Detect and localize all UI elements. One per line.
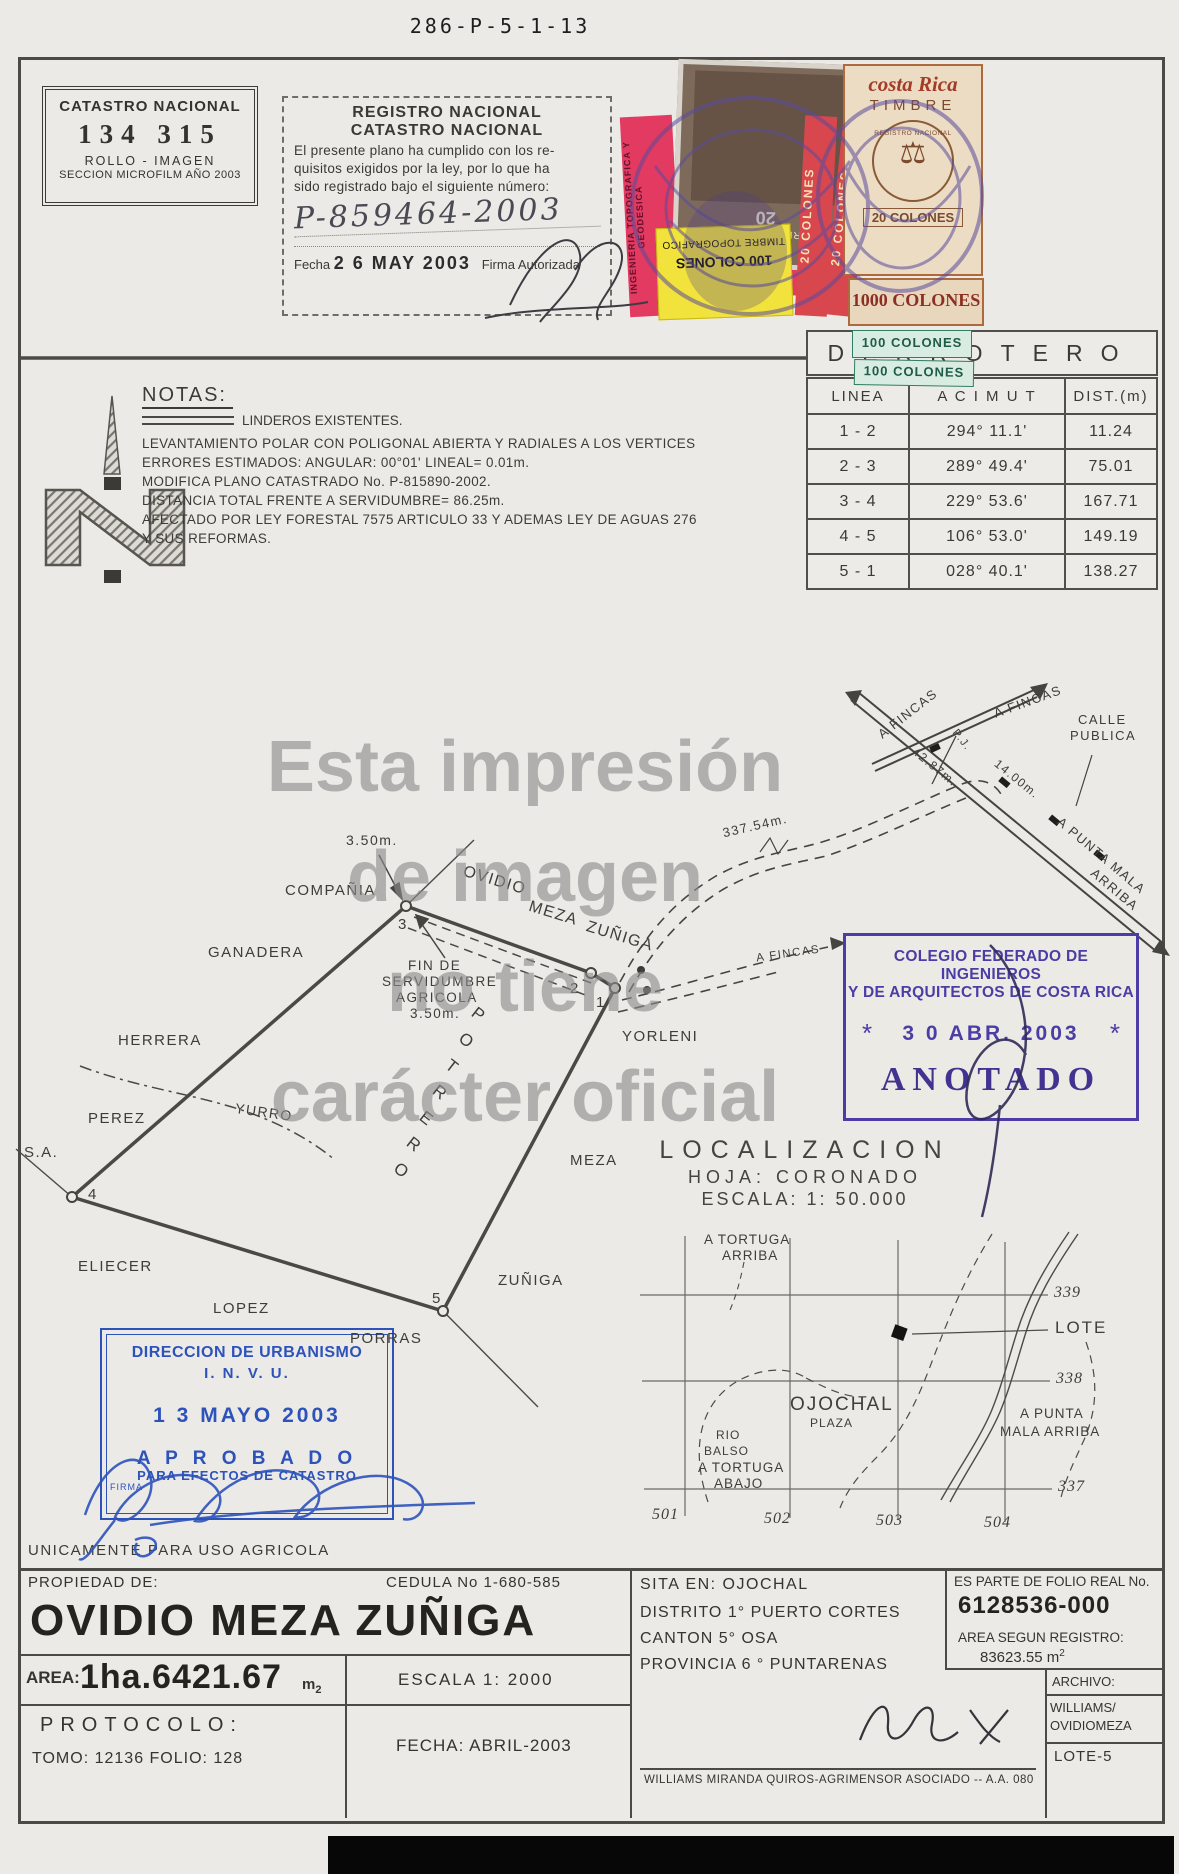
neighbor-label: LOPEZ bbox=[213, 1300, 270, 1317]
neighbor-label: S.A. bbox=[24, 1144, 58, 1161]
distrito: DISTRITO 1° PUERTO CORTES bbox=[640, 1604, 900, 1622]
owner-name: OVIDIO MEZA ZUÑIGA bbox=[30, 1596, 536, 1646]
invu-aprobado-stamp: DIRECCION DE URBANISMO I. N. V. U. 1 3 M… bbox=[100, 1328, 394, 1520]
uso-agricola-note: UNICAMENTE PARA USO AGRICOLA bbox=[28, 1542, 330, 1559]
registro-body1: El presente plano ha cumplido con los re… bbox=[294, 143, 600, 158]
cell-acimut: 294° 11.1' bbox=[909, 414, 1065, 449]
invu-line2: I. N. V. U. bbox=[102, 1365, 392, 1382]
colegio-federado-stamp: COLEGIO FEDERADO DE INGENIEROS Y DE ARQU… bbox=[843, 933, 1139, 1121]
cell-linea: 2 - 3 bbox=[807, 449, 909, 484]
lote-label: LOTE bbox=[1055, 1318, 1107, 1338]
protocolo-label: PROTOCOLO: bbox=[40, 1714, 243, 1737]
cell-acimut: 289° 49.4' bbox=[909, 449, 1065, 484]
tomo-folio: TOMO: 12136 FOLIO: 128 bbox=[32, 1750, 243, 1768]
fecha-stamp: 2 6 MAY 2003 bbox=[334, 253, 471, 273]
cell-linea: 5 - 1 bbox=[807, 554, 909, 589]
colegio-line2: Y DE ARQUITECTOS DE COSTA RICA bbox=[846, 984, 1136, 1002]
registro-nacional-stamp: REGISTRO NACIONAL CATASTRO NACIONAL El p… bbox=[282, 96, 612, 316]
linderos-symbol bbox=[142, 416, 234, 425]
archivo-lote: LOTE-5 bbox=[1054, 1748, 1113, 1765]
registro-fecha-row: Fecha 2 6 MAY 2003 Firma Autorizada bbox=[294, 246, 600, 274]
registro-body2: quisitos exigidos por la ley, por lo que… bbox=[294, 161, 600, 176]
cedula-value: CEDULA No 1-680-585 bbox=[386, 1574, 561, 1591]
cell-linea: 1 - 2 bbox=[807, 414, 909, 449]
agrimensor-name: WILLIAMS MIRANDA QUIROS-AGRIMENSOR ASOCI… bbox=[644, 1774, 1034, 1786]
servidumbre-note: SERVIDUMBRE bbox=[382, 974, 497, 989]
folio-real-value: 6128536-000 bbox=[958, 1592, 1110, 1620]
colegio-line1: COLEGIO FEDERADO DE INGENIEROS bbox=[846, 948, 1136, 984]
archivo-label: ARCHIVO: bbox=[1052, 1674, 1115, 1689]
scanned-cadastral-plan: 286-P-5-1-13 bbox=[0, 0, 1179, 1874]
table-row: 3 - 4229° 53.6'167.71 bbox=[807, 484, 1157, 519]
calle-publica-label: CALLE bbox=[1078, 712, 1127, 727]
invu-line1: DIRECCION DE URBANISMO bbox=[102, 1344, 392, 1362]
invu-aprobado: A P R O B A D O bbox=[102, 1448, 392, 1470]
servidumbre-note: AGRICOLA bbox=[396, 990, 478, 1005]
stamp-number: 134 315 bbox=[46, 119, 254, 150]
map-destination-label: MALA ARRIBA bbox=[1000, 1424, 1100, 1439]
grid-label: 338 bbox=[1056, 1370, 1083, 1388]
cell-acimut: 229° 53.6' bbox=[909, 484, 1065, 519]
localizacion-escala: ESCALA: 1: 50.000 bbox=[545, 1189, 1065, 1210]
linderos-text: LINDEROS EXISTENTES. bbox=[242, 413, 403, 428]
river-label: RIO bbox=[716, 1428, 740, 1442]
star-icon: * bbox=[1110, 1018, 1120, 1049]
provincia: PROVINCIA 6 ° PUNTARENAS bbox=[640, 1656, 888, 1674]
table-row: 4 - 5106° 53.0'149.19 bbox=[807, 519, 1157, 554]
servidumbre-note: FIN DE bbox=[408, 958, 461, 973]
stamp-seccion: SECCION MICROFILM AÑO 2003 bbox=[46, 169, 254, 181]
servidumbre-width-label: 3.50m. bbox=[346, 832, 398, 848]
river-label: BALSO bbox=[704, 1444, 749, 1458]
document-number: 286-P-5-1-13 bbox=[0, 14, 1000, 38]
invu-date: 1 3 MAYO 2003 bbox=[102, 1404, 392, 1428]
map-destination-label: A PUNTA bbox=[1020, 1406, 1084, 1421]
neighbor-label: YORLENI bbox=[622, 1028, 698, 1045]
stamp-title: CATASTRO NACIONAL bbox=[46, 98, 254, 115]
nota-line: DISTANCIA TOTAL FRENTE A SERVIDUMBRE= 86… bbox=[142, 491, 812, 510]
cell-dist: 138.27 bbox=[1065, 554, 1157, 589]
neighbor-label: PORRAS bbox=[350, 1330, 422, 1347]
vertex-number: 4 bbox=[88, 1186, 98, 1203]
notas-title: NOTAS: bbox=[142, 384, 233, 409]
col-dist: DIST.(m) bbox=[1065, 377, 1157, 415]
escala-value: ESCALA 1: 2000 bbox=[398, 1670, 554, 1690]
area-registro-value: 83623.55 m2 bbox=[980, 1648, 1065, 1666]
star-icon: * bbox=[862, 1018, 872, 1049]
plaza-label: PLAZA bbox=[810, 1416, 853, 1430]
registro-title2: CATASTRO NACIONAL bbox=[294, 122, 600, 140]
grid-label: 504 bbox=[984, 1514, 1011, 1532]
nota-line: ERRORES ESTIMADOS: ANGULAR: 00°01' LINEA… bbox=[142, 453, 812, 472]
neighbor-label: ELIECER bbox=[78, 1258, 153, 1275]
revenue-stamps-cluster: INGENIERIA TOPOGRAFICA Y GEODESICA INGEN… bbox=[615, 46, 995, 366]
nota-line: MODIFICA PLANO CATASTRADO No. P-815890-2… bbox=[142, 472, 812, 491]
table-row: 2 - 3289° 49.4'75.01 bbox=[807, 449, 1157, 484]
area-unit: m2 bbox=[302, 1676, 321, 1696]
neighbor-label: COMPAÑIA bbox=[285, 882, 376, 899]
servidumbre-note: 3.50m. bbox=[410, 1006, 460, 1021]
cell-dist: 167.71 bbox=[1065, 484, 1157, 519]
vertex-number: 1 bbox=[596, 994, 606, 1011]
localizacion-title: LOCALIZACION bbox=[545, 1136, 1065, 1165]
vertex-number: 3 bbox=[398, 916, 408, 933]
folio-real-label: ES PARTE DE FOLIO REAL No. bbox=[954, 1574, 1150, 1589]
cell-linea: 3 - 4 bbox=[807, 484, 909, 519]
archivo-line: WILLIAMS/ bbox=[1050, 1700, 1116, 1715]
stamp-rollo: ROLLO - IMAGEN bbox=[46, 154, 254, 168]
firma-label: Firma Autorizada bbox=[482, 257, 580, 272]
nota-line: AFECTADO POR LEY FORESTAL 7575 ARTICULO … bbox=[142, 510, 812, 529]
anotado-text: ANOTADO bbox=[846, 1061, 1136, 1099]
vertex-number: 5 bbox=[432, 1290, 442, 1307]
grid-label: 503 bbox=[876, 1512, 903, 1530]
linderos-legend: LINDEROS EXISTENTES. bbox=[142, 413, 812, 428]
invu-para: PARA EFECTOS DE CATASTRO bbox=[102, 1468, 392, 1483]
catastro-nacional-stamp: CATASTRO NACIONAL 134 315 ROLLO - IMAGEN… bbox=[42, 86, 258, 206]
neighbor-label: ZUÑIGA bbox=[498, 1272, 564, 1289]
neighbor-label: PEREZ bbox=[88, 1110, 146, 1127]
notas-block: NOTAS: LINDEROS EXISTENTES. LEVANTAMIENT… bbox=[142, 384, 812, 548]
area-label: AREA: bbox=[26, 1668, 80, 1688]
map-destination-label: ABAJO bbox=[714, 1476, 763, 1491]
grid-label: 502 bbox=[764, 1510, 791, 1528]
invu-firma-label: FIRMA bbox=[110, 1482, 143, 1492]
cell-dist: 75.01 bbox=[1065, 449, 1157, 484]
fecha-plano: FECHA: ABRIL-2003 bbox=[396, 1736, 572, 1756]
canton: CANTON 5° OSA bbox=[640, 1630, 778, 1648]
colegio-date: 3 0 ABR. 2003 bbox=[902, 1022, 1079, 1046]
archivo-line: OVIDIOMEZA bbox=[1050, 1718, 1132, 1733]
fecha-label: Fecha bbox=[294, 257, 330, 272]
sita-en: SITA EN: OJOCHAL bbox=[640, 1576, 809, 1594]
neighbor-label: GANADERA bbox=[208, 944, 304, 961]
area-registro-label: AREA SEGUN REGISTRO: bbox=[958, 1630, 1124, 1645]
cell-acimut: 106° 53.0' bbox=[909, 519, 1065, 554]
grid-label: 501 bbox=[652, 1506, 679, 1524]
title-block-table: PROPIEDAD DE: CEDULA No 1-680-585 OVIDIO… bbox=[18, 1568, 1162, 1818]
localizacion-hoja: HOJA: CORONADO bbox=[545, 1167, 1065, 1188]
grid-label: 337 bbox=[1058, 1478, 1085, 1496]
map-destination-label: ARRIBA bbox=[722, 1248, 778, 1263]
map-destination-label: A TORTUGA bbox=[698, 1460, 784, 1475]
town-label: OJOCHAL bbox=[790, 1394, 894, 1416]
cell-acimut: 028° 40.1' bbox=[909, 554, 1065, 589]
cell-dist: 11.24 bbox=[1065, 414, 1157, 449]
table-row: 5 - 1028° 40.1'138.27 bbox=[807, 554, 1157, 589]
table-row: 1 - 2294° 11.1'11.24 bbox=[807, 414, 1157, 449]
nota-line: LEVANTAMIENTO POLAR CON POLIGONAL ABIERT… bbox=[142, 434, 812, 453]
registro-title1: REGISTRO NACIONAL bbox=[294, 104, 600, 122]
localizacion-block: LOCALIZACION HOJA: CORONADO ESCALA: 1: 5… bbox=[545, 1136, 1065, 1210]
cell-linea: 4 - 5 bbox=[807, 519, 909, 554]
grid-label: 339 bbox=[1054, 1284, 1081, 1302]
scan-black-bar bbox=[328, 1836, 1174, 1874]
calle-publica-label: PUBLICA bbox=[1070, 728, 1136, 743]
cell-dist: 149.19 bbox=[1065, 519, 1157, 554]
cancellation-overprint bbox=[615, 46, 995, 366]
registro-number-handwritten: P-859464-2003 bbox=[293, 191, 600, 238]
map-destination-label: A TORTUGA bbox=[704, 1232, 790, 1247]
vertex-number: 2 bbox=[570, 980, 580, 997]
propiedad-label: PROPIEDAD DE: bbox=[28, 1574, 159, 1591]
area-value: 1ha.6421.67 bbox=[80, 1658, 282, 1697]
nota-line: Y SUS REFORMAS. bbox=[142, 529, 812, 548]
neighbor-label: HERRERA bbox=[118, 1032, 202, 1049]
